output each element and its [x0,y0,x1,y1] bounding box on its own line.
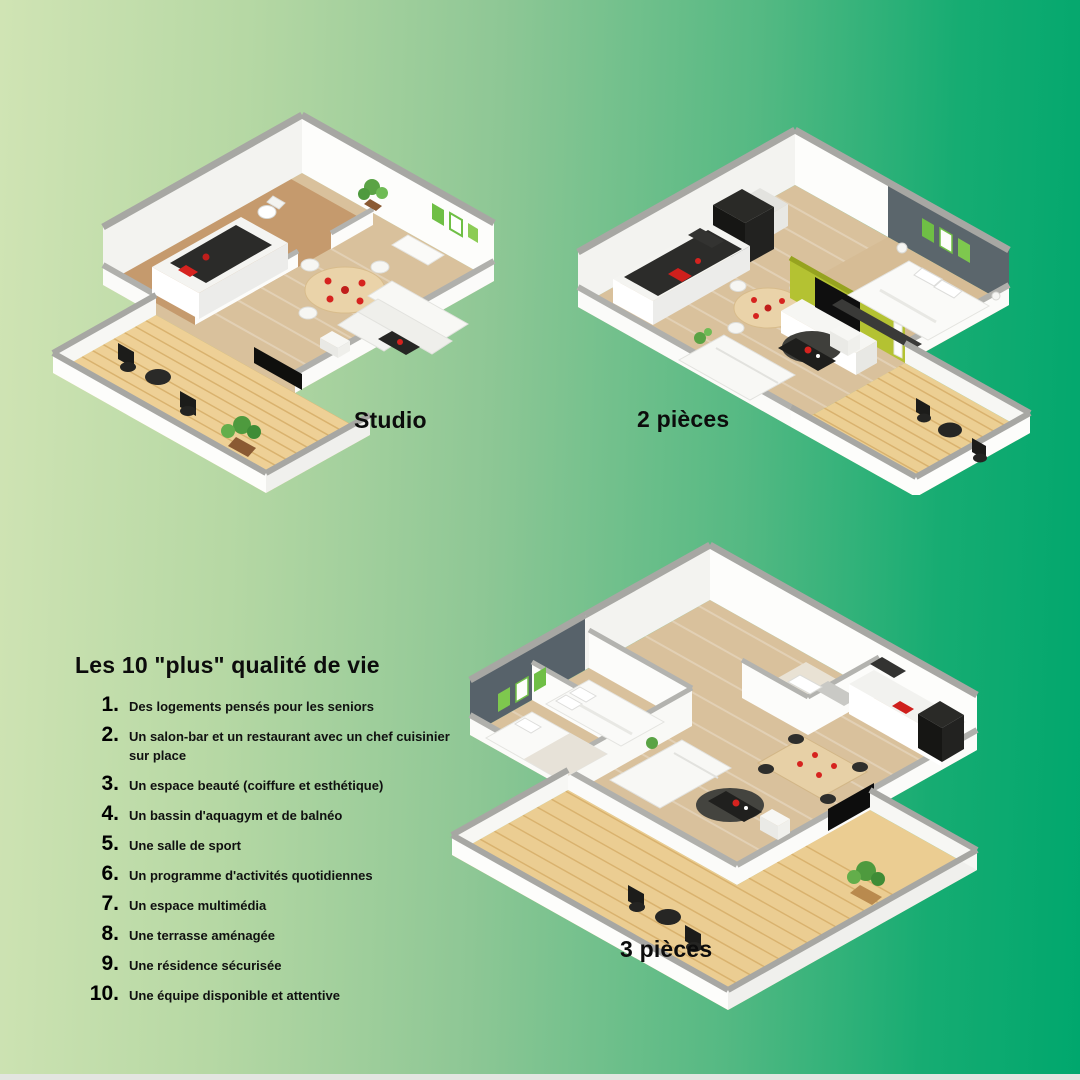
feature-item-1: 1. Des logements pensés pour les seniors [75,693,475,716]
feature-item-8: 8. Une terrasse aménagée [75,922,475,945]
studio-floorplan-drawing [40,85,520,505]
two-rooms-caption: 2 pièces [637,406,729,433]
feature-text: Une résidence sécurisée [129,952,281,975]
feature-text: Un programme d'activités quotidiennes [129,862,373,885]
feature-text: Des logements pensés pour les seniors [129,693,374,716]
feature-item-9: 9. Une résidence sécurisée [75,952,475,975]
feature-text: Une équipe disponible et attentive [129,982,340,1005]
brochure-page: Studio 2 pièces 3 pièces Les 10 "plus" q… [0,0,1080,1080]
feature-text: Un espace beauté (coiffure et esthétique… [129,772,383,795]
feature-number: 9. [75,952,119,975]
feature-item-3: 3. Un espace beauté (coiffure et esthéti… [75,772,475,795]
features-panel: Les 10 "plus" qualité de vie 1. Des loge… [75,652,475,1012]
three-rooms-floorplan-drawing [430,515,1080,1080]
feature-item-10: 10. Une équipe disponible et attentive [75,982,475,1005]
feature-number: 7. [75,892,119,915]
feature-item-7: 7. Un espace multimédia [75,892,475,915]
studio-floorplan [40,85,520,505]
feature-item-6: 6. Un programme d'activités quotidiennes [75,862,475,885]
feature-number: 2. [75,723,119,746]
feature-item-4: 4. Un bassin d'aquagym et de balnéo [75,802,475,825]
three-rooms-floorplan [430,515,1080,1080]
feature-text: Un espace multimédia [129,892,266,915]
three-rooms-caption: 3 pièces [620,936,712,963]
feature-number: 3. [75,772,119,795]
feature-number: 8. [75,922,119,945]
studio-caption: Studio [354,407,427,434]
feature-item-5: 5. Une salle de sport [75,832,475,855]
feature-number: 6. [75,862,119,885]
two-rooms-floorplan [550,100,1070,495]
feature-number: 10. [75,982,119,1005]
features-title: Les 10 "plus" qualité de vie [75,652,475,679]
two-rooms-floorplan-drawing [550,100,1070,495]
feature-text: Un bassin d'aquagym et de balnéo [129,802,342,825]
feature-text: Un salon-bar et un restaurant avec un ch… [129,723,459,765]
feature-number: 1. [75,693,119,716]
feature-number: 4. [75,802,119,825]
feature-number: 5. [75,832,119,855]
feature-item-2: 2. Un salon-bar et un restaurant avec un… [75,723,475,765]
feature-text: Une salle de sport [129,832,241,855]
bottom-edge-strip [0,1074,1080,1080]
feature-text: Une terrasse aménagée [129,922,275,945]
